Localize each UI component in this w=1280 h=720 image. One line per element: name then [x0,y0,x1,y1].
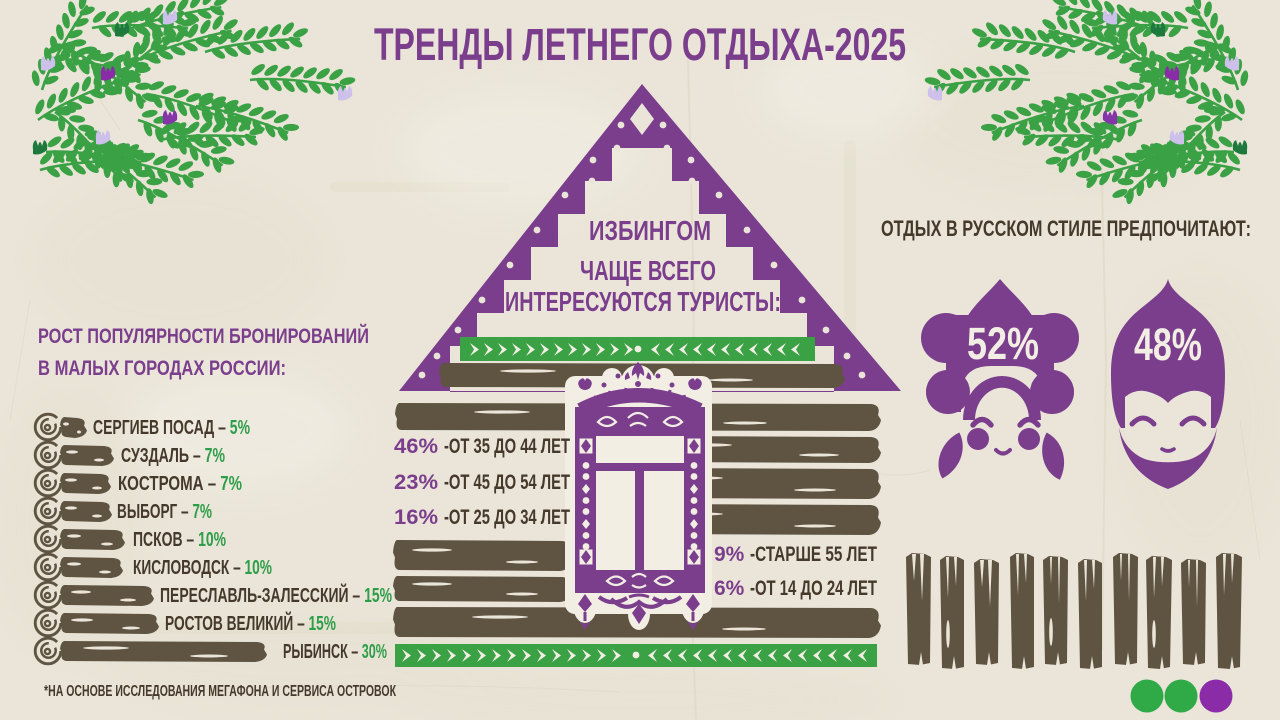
svg-text:ПСКОВ – 10%: ПСКОВ – 10% [133,529,226,551]
svg-text:-ОТ 25 ДО 34 ЛЕТ: -ОТ 25 ДО 34 ЛЕТ [444,506,570,529]
svg-text:ВЫБОРГ – 7%: ВЫБОРГ – 7% [117,501,212,523]
svg-text:-ОТ 45 ДО 54 ЛЕТ: -ОТ 45 ДО 54 ЛЕТ [444,471,570,494]
svg-text:ОТДЫХ В РУССКОМ СТИЛЕ ПРЕДПОЧИ: ОТДЫХ В РУССКОМ СТИЛЕ ПРЕДПОЧИТАЮТ: [881,216,1251,241]
svg-text:46%: 46% [394,435,438,458]
svg-text:6%: 6% [714,577,745,600]
svg-text:ПЕРЕСЛАВЛЬ-ЗАЛЕССКИЙ – 15%: ПЕРЕСЛАВЛЬ-ЗАЛЕССКИЙ – 15% [160,583,392,607]
svg-text:-ОТ 14 ДО 24 ЛЕТ: -ОТ 14 ДО 24 ЛЕТ [750,577,877,600]
svg-text:52%: 52% [967,318,1039,369]
svg-text:-ОТ 35 ДО 44 ЛЕТ: -ОТ 35 ДО 44 ЛЕТ [444,435,570,458]
svg-text:В МАЛЫХ ГОРОДАХ РОССИИ:: В МАЛЫХ ГОРОДАХ РОССИИ: [38,357,286,380]
svg-text:-СТАРШЕ 55 ЛЕТ: -СТАРШЕ 55 ЛЕТ [750,543,877,566]
svg-text:РОСТ ПОПУЛЯРНОСТИ БРОНИРОВАНИЙ: РОСТ ПОПУЛЯРНОСТИ БРОНИРОВАНИЙ [38,324,369,348]
svg-text:КИСЛОВОДСК – 10%: КИСЛОВОДСК – 10% [133,557,272,579]
svg-text:РОСТОВ ВЕЛИКИЙ – 15%: РОСТОВ ВЕЛИКИЙ – 15% [165,611,336,635]
svg-text:ИНТЕРЕСУЮТСЯ ТУРИСТЫ:: ИНТЕРЕСУЮТСЯ ТУРИСТЫ: [505,286,781,317]
svg-text:*НА ОСНОВЕ ИССЛЕДОВАНИЯ МЕГАФО: *НА ОСНОВЕ ИССЛЕДОВАНИЯ МЕГАФОНА И СЕРВИ… [44,683,396,700]
svg-text:СЕРГИЕВ ПОСАД – 5%: СЕРГИЕВ ПОСАД – 5% [93,417,250,439]
svg-text:ИЗБИНГОМ: ИЗБИНГОМ [589,215,711,246]
svg-text:48%: 48% [1134,319,1202,370]
svg-text:ТРЕНДЫ ЛЕТНЕГО ОТДЫХА-2025: ТРЕНДЫ ЛЕТНЕГО ОТДЫХА-2025 [374,19,906,70]
svg-text:16%: 16% [394,506,438,529]
svg-text:СУЗДАЛЬ – 7%: СУЗДАЛЬ – 7% [121,445,225,467]
svg-text:9%: 9% [714,543,745,566]
svg-text:РЫБИНСК – 30%: РЫБИНСК – 30% [283,641,387,663]
svg-text:23%: 23% [394,471,438,494]
svg-text:КОСТРОМА – 7%: КОСТРОМА – 7% [118,473,242,495]
svg-text:ЧАЩЕ ВСЕГО: ЧАЩЕ ВСЕГО [580,255,716,286]
